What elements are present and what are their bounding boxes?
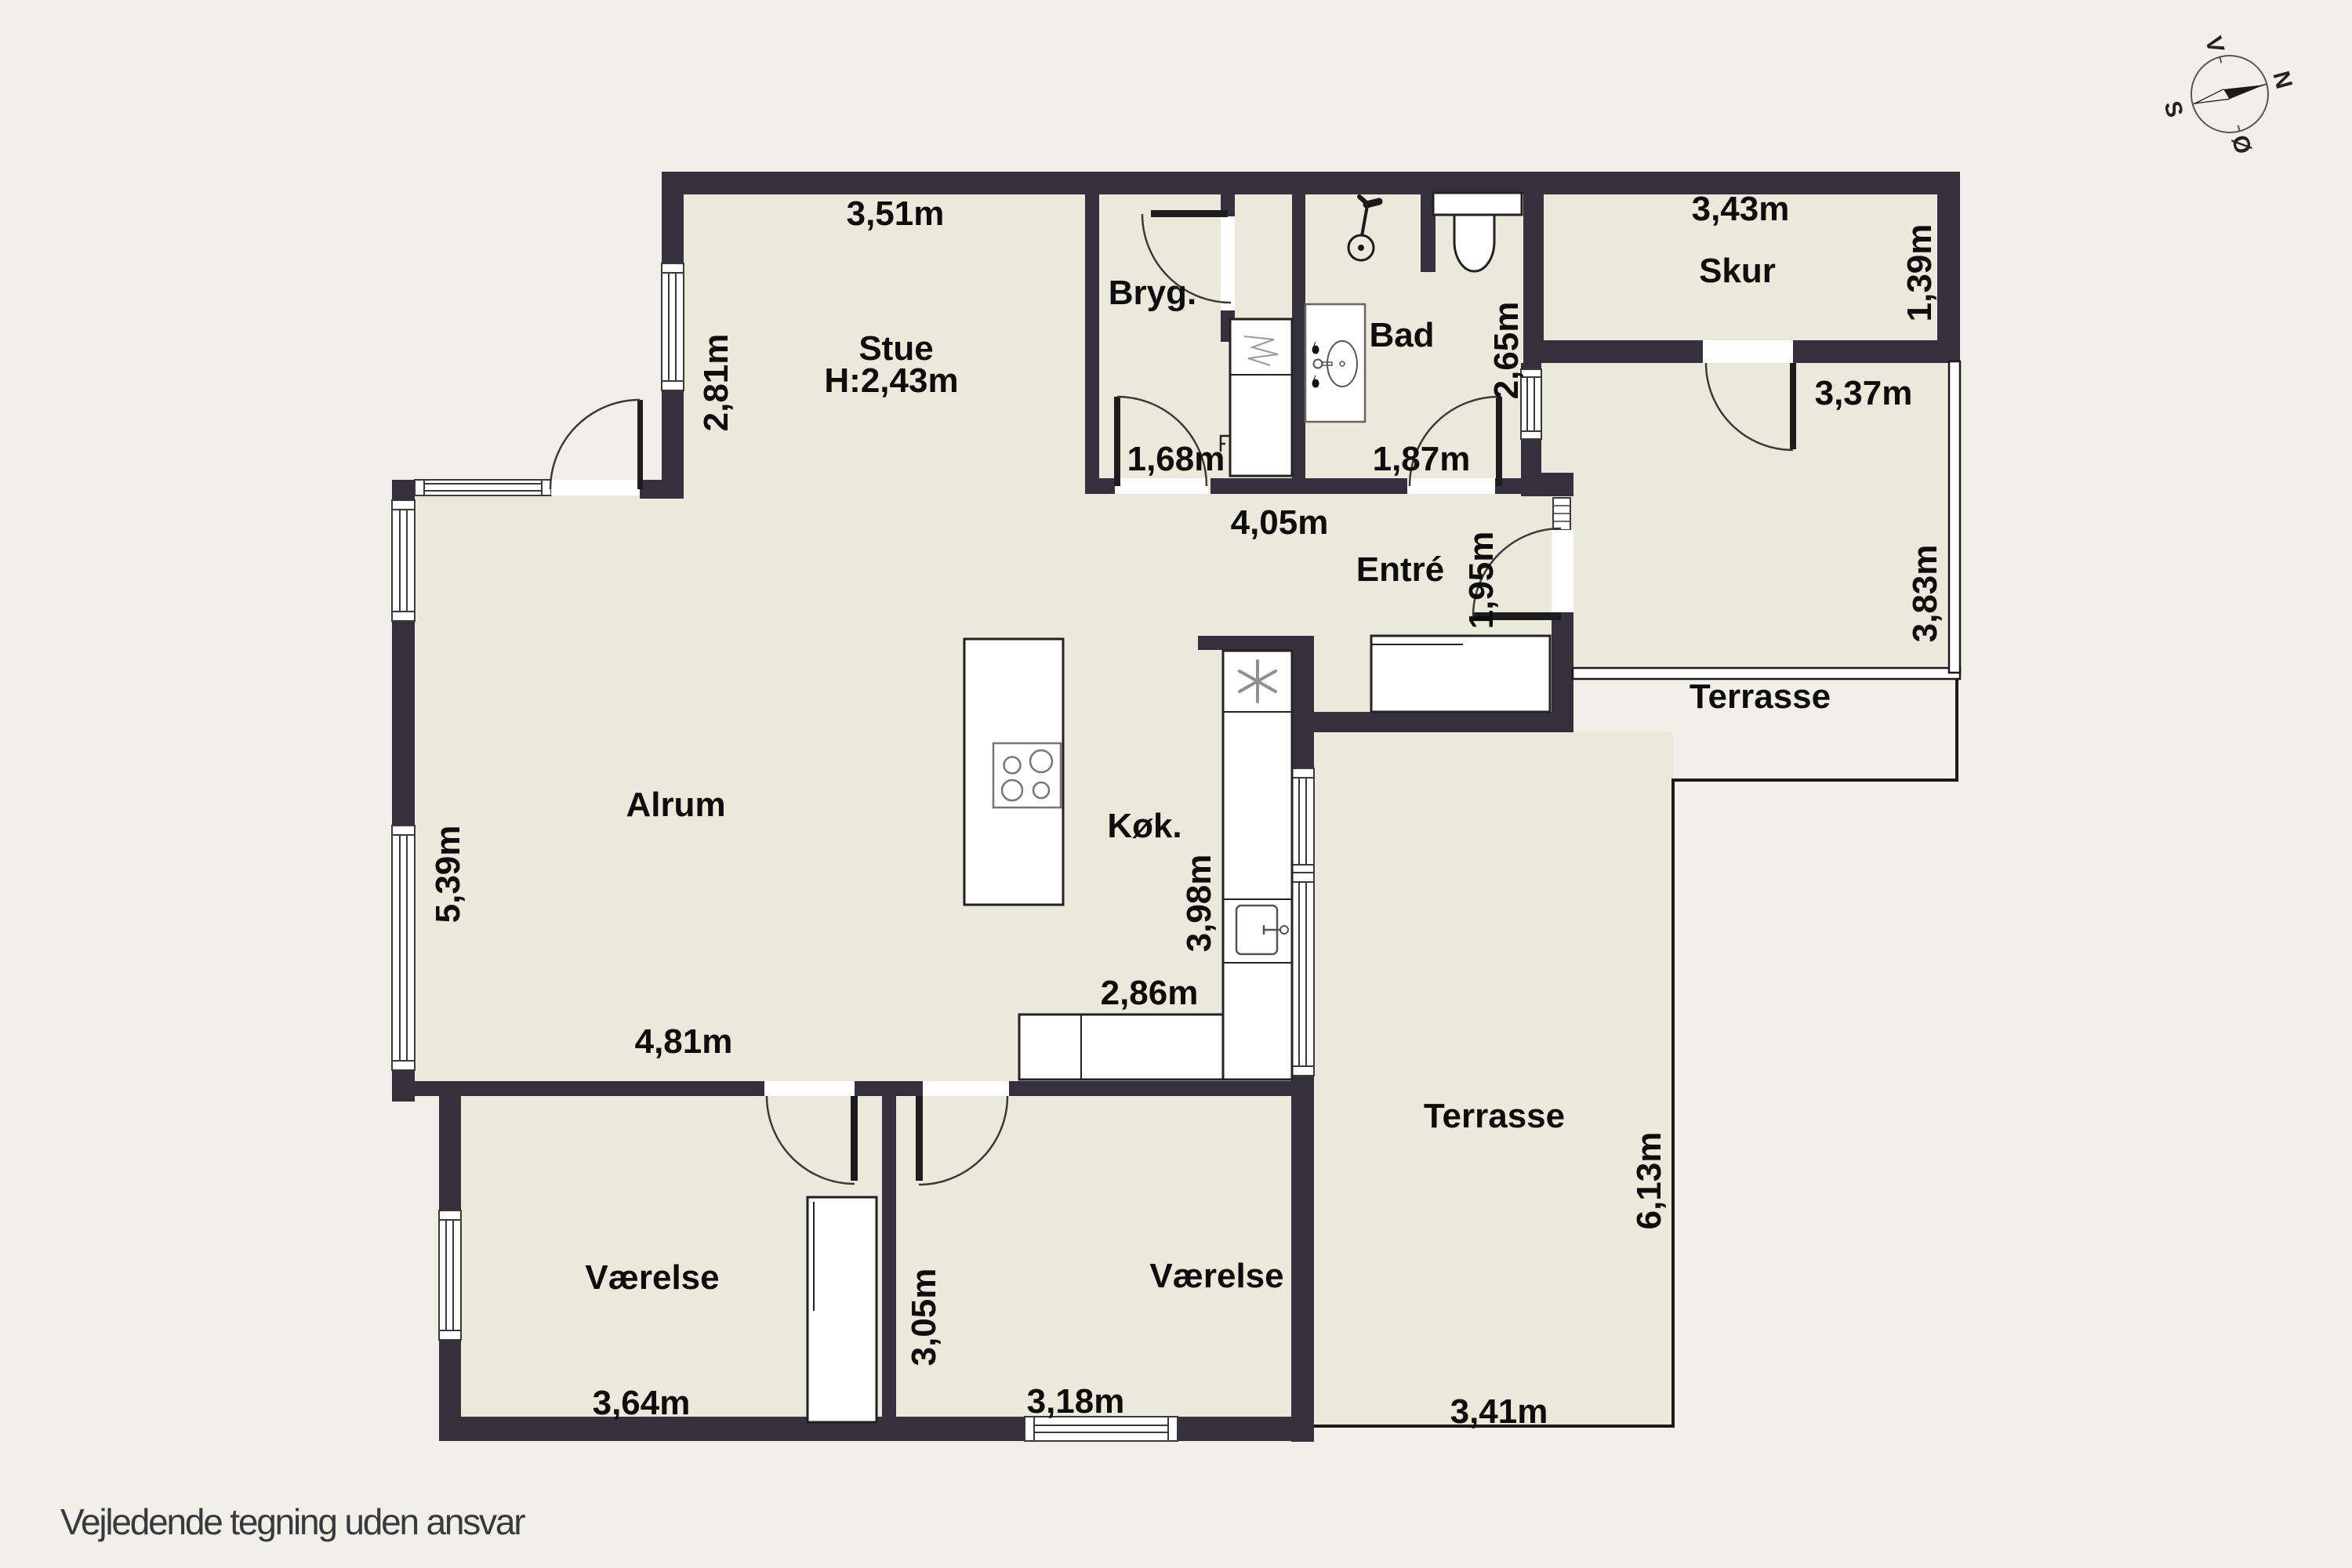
svg-text:3,37m: 3,37m [1815, 374, 1913, 412]
svg-text:Bad: Bad [1369, 316, 1434, 354]
svg-text:Værelse: Værelse [585, 1258, 719, 1297]
svg-text:Alrum: Alrum [626, 786, 725, 824]
svg-text:3,64m: 3,64m [593, 1384, 691, 1422]
svg-text:3,51m: 3,51m [847, 194, 945, 233]
svg-text:Skur: Skur [1699, 252, 1776, 290]
svg-text:Terrasse: Terrasse [1690, 677, 1831, 716]
svg-text:1,68m: 1,68m [1127, 440, 1225, 478]
svg-text:1,39m: 1,39m [1900, 224, 1939, 322]
svg-text:3,43m: 3,43m [1692, 190, 1790, 228]
svg-text:Terrasse: Terrasse [1424, 1097, 1565, 1135]
svg-text:Vejledende tegning uden ansvar: Vejledende tegning uden ansvar [60, 1501, 525, 1542]
svg-text:4,05m: 4,05m [1231, 503, 1329, 542]
svg-text:3,18m: 3,18m [1027, 1382, 1125, 1421]
svg-text:Entré: Entré [1356, 550, 1444, 589]
svg-text:Bryg.: Bryg. [1109, 274, 1196, 312]
svg-text:4,81m: 4,81m [635, 1022, 733, 1061]
svg-text:1,87m: 1,87m [1373, 440, 1471, 478]
svg-text:2,81m: 2,81m [697, 334, 735, 432]
svg-text:Køk.: Køk. [1107, 807, 1181, 845]
svg-text:2,86m: 2,86m [1101, 974, 1199, 1012]
svg-text:Værelse: Værelse [1149, 1257, 1283, 1295]
svg-text:2,65m: 2,65m [1487, 302, 1526, 400]
svg-text:3,83m: 3,83m [1906, 545, 1944, 643]
svg-text:3,41m: 3,41m [1450, 1392, 1548, 1431]
svg-text:6,13m: 6,13m [1630, 1132, 1668, 1230]
svg-text:3,98m: 3,98m [1180, 855, 1218, 953]
svg-text:3,05m: 3,05m [905, 1269, 943, 1367]
svg-text:H:2,43m: H:2,43m [824, 361, 958, 400]
svg-text:1,95m: 1,95m [1462, 532, 1501, 630]
svg-text:5,39m: 5,39m [429, 826, 467, 924]
